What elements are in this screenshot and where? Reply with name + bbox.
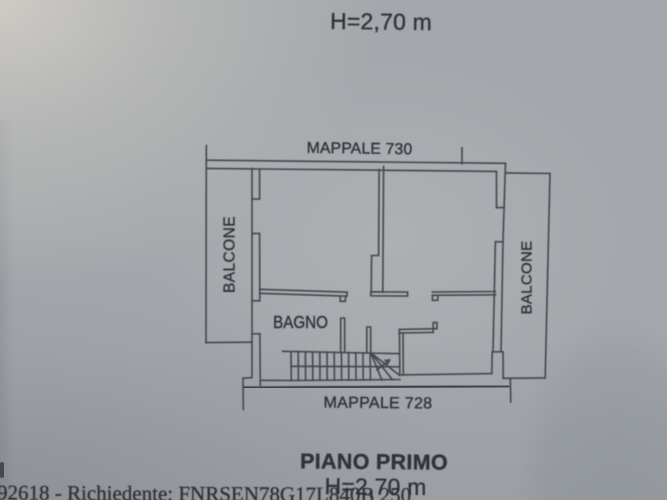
svg-text:H=2,70 m: H=2,70 m — [330, 8, 432, 35]
svg-text:MAPPALE 730: MAPPALE 730 — [307, 140, 413, 158]
svg-text:MAPPALE 728: MAPPALE 728 — [324, 395, 433, 413]
svg-text:PIANO PRIMO: PIANO PRIMO — [300, 449, 448, 474]
svg-text:BALCONE: BALCONE — [519, 241, 536, 315]
svg-text:92618 - Richiedente: FNRSEN78G: 92618 - Richiedente: FNRSEN78G17L840B 25… — [0, 480, 411, 500]
svg-text:BAGNO: BAGNO — [273, 312, 328, 332]
svg-text:BALCONE: BALCONE — [222, 216, 239, 293]
